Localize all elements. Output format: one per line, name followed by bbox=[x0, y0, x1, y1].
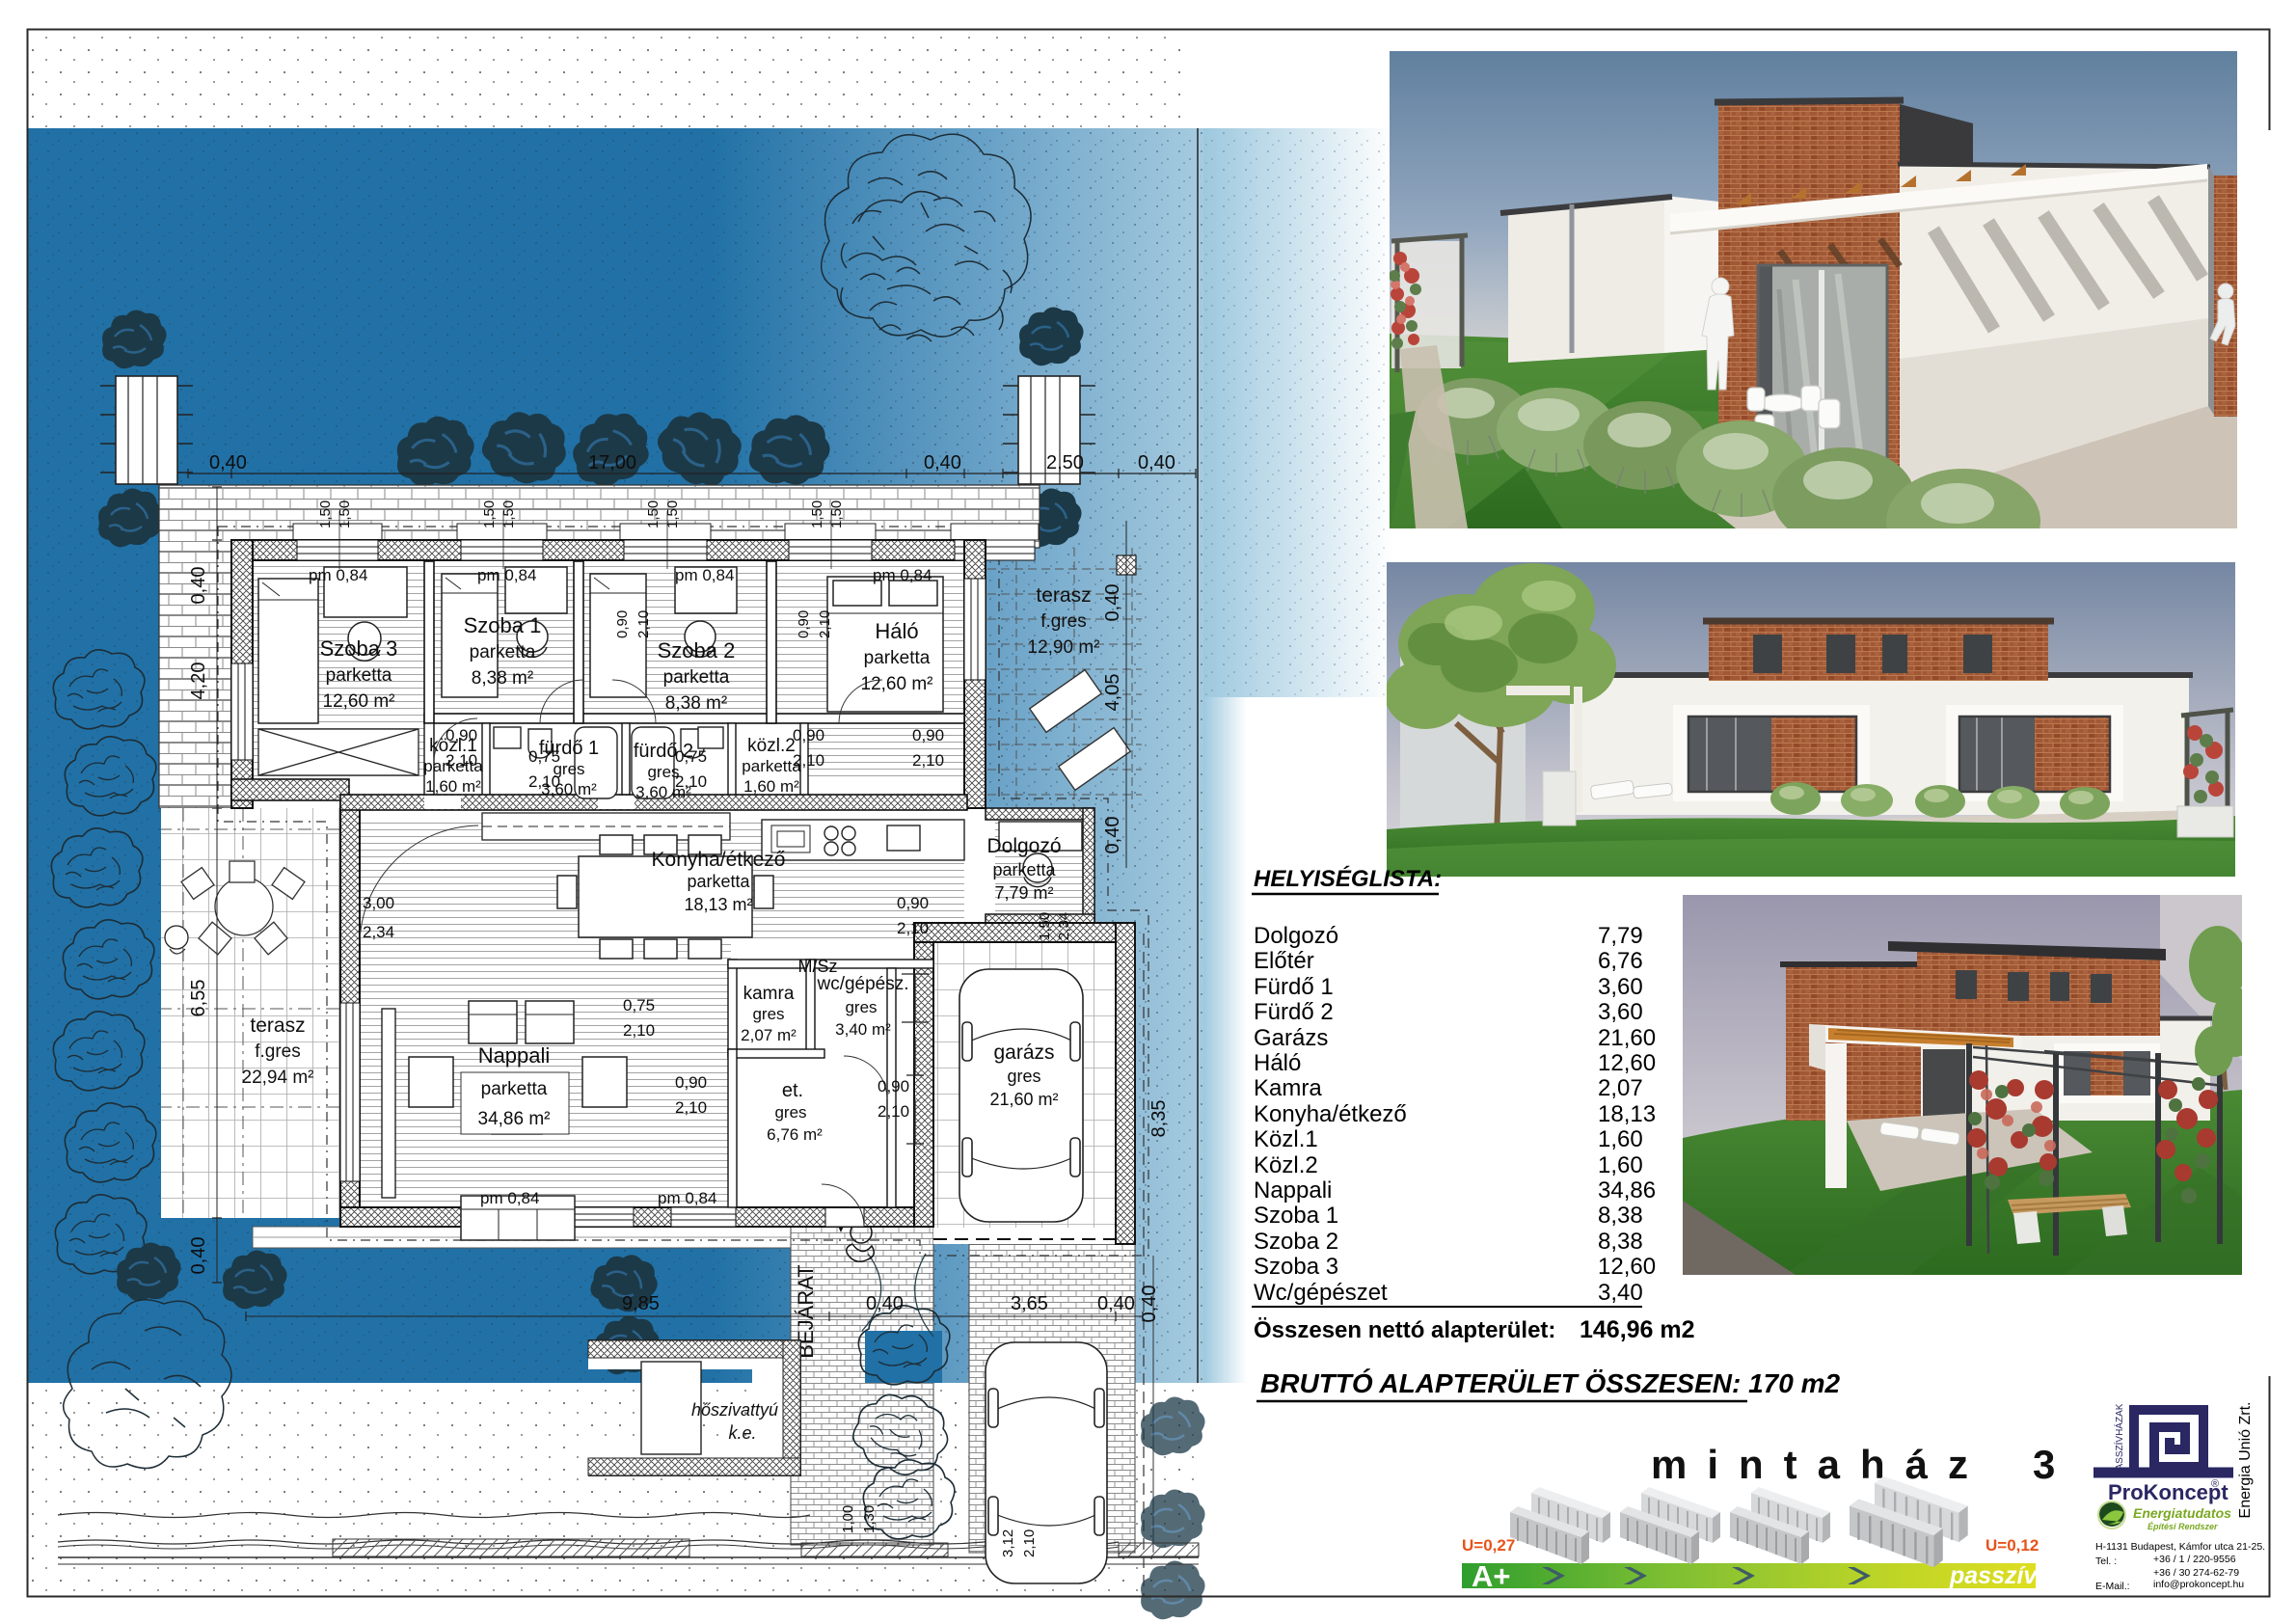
svg-text:Szoba 3: Szoba 3 bbox=[320, 636, 398, 661]
svg-text:Energiatudatos: Energiatudatos bbox=[2133, 1505, 2231, 1521]
svg-text:Garázs: Garázs bbox=[1254, 1025, 1328, 1051]
svg-text:1,50: 1,50 bbox=[481, 500, 498, 528]
svg-text:Szoba 2: Szoba 2 bbox=[658, 638, 736, 663]
svg-text:mintaház: mintaház bbox=[1651, 1442, 1988, 1487]
svg-text:Nappali: Nappali bbox=[478, 1043, 551, 1068]
svg-text:8,35: 8,35 bbox=[1148, 1100, 1170, 1138]
svg-text:kamra: kamra bbox=[743, 984, 795, 1004]
svg-text:2,07 m²: 2,07 m² bbox=[741, 1026, 797, 1044]
svg-text:Szoba 3: Szoba 3 bbox=[1254, 1254, 1338, 1280]
svg-text:0,75: 0,75 bbox=[675, 747, 707, 766]
svg-text:Konyha/étkező: Konyha/étkező bbox=[652, 849, 786, 871]
svg-text:0,40: 0,40 bbox=[1102, 584, 1123, 622]
svg-text:Háló: Háló bbox=[1254, 1050, 1301, 1076]
svg-text:2,10: 2,10 bbox=[878, 1102, 909, 1121]
svg-text:U=0,27: U=0,27 bbox=[1462, 1536, 1515, 1555]
svg-text:+36 / 30 274-62-79: +36 / 30 274-62-79 bbox=[2153, 1567, 2239, 1579]
svg-text:0,40: 0,40 bbox=[866, 1293, 904, 1314]
svg-text:3,40 m²: 3,40 m² bbox=[835, 1020, 891, 1039]
svg-text:Építési Rendszer: Építési Rendszer bbox=[2147, 1522, 2218, 1531]
svg-text:Közl.2: Közl.2 bbox=[1254, 1152, 1318, 1178]
svg-text:1,50: 1,50 bbox=[1037, 912, 1053, 940]
svg-text:0,90: 0,90 bbox=[796, 610, 812, 638]
svg-text:pm 0,84: pm 0,84 bbox=[658, 1189, 716, 1207]
svg-text:hőszivattyú: hőszivattyú bbox=[691, 1400, 778, 1420]
svg-text:k.e.: k.e. bbox=[728, 1423, 756, 1443]
svg-text:0,40: 0,40 bbox=[188, 1237, 209, 1275]
svg-text:gres: gres bbox=[774, 1103, 806, 1122]
svg-text:parketta: parketta bbox=[470, 642, 536, 663]
svg-text:pm 0,84: pm 0,84 bbox=[873, 566, 932, 584]
svg-text:2,10: 2,10 bbox=[623, 1021, 655, 1040]
svg-text:Dolgozó: Dolgozó bbox=[1254, 923, 1338, 949]
svg-text:pm 0,84: pm 0,84 bbox=[675, 566, 734, 584]
svg-text:7,79: 7,79 bbox=[1598, 923, 1643, 949]
svg-text:pm 0,84: pm 0,84 bbox=[480, 1189, 539, 1207]
svg-text:pm 0,84: pm 0,84 bbox=[309, 566, 367, 584]
svg-text:Szoba 1: Szoba 1 bbox=[464, 613, 542, 637]
svg-text:1,60 m²: 1,60 m² bbox=[743, 777, 799, 796]
svg-text:6,76 m²: 6,76 m² bbox=[767, 1125, 823, 1144]
svg-text:0,40: 0,40 bbox=[209, 452, 247, 473]
svg-text:0,90: 0,90 bbox=[614, 610, 631, 638]
svg-text:f.gres: f.gres bbox=[1040, 611, 1087, 632]
svg-text:f.gres: f.gres bbox=[255, 1041, 301, 1062]
svg-text:6,76: 6,76 bbox=[1598, 948, 1643, 974]
svg-text:0,75: 0,75 bbox=[623, 996, 655, 1014]
svg-text:parketta: parketta bbox=[864, 648, 931, 668]
svg-text:U=0,12: U=0,12 bbox=[1985, 1536, 2039, 1555]
svg-text:22,94 m²: 22,94 m² bbox=[242, 1068, 314, 1088]
svg-text:2,34: 2,34 bbox=[363, 923, 394, 941]
svg-text:Összesen nettó alapterület:: Összesen nettó alapterület: bbox=[1254, 1317, 1555, 1343]
svg-text:17,00: 17,00 bbox=[588, 452, 636, 473]
svg-text:info@prokoncept.hu: info@prokoncept.hu bbox=[2153, 1579, 2244, 1590]
svg-text:12,90 m²: 12,90 m² bbox=[1028, 637, 1100, 658]
svg-text:34,86: 34,86 bbox=[1598, 1177, 1656, 1204]
svg-text:7,79 m²: 7,79 m² bbox=[994, 883, 1053, 903]
svg-text:2,10: 2,10 bbox=[817, 610, 833, 638]
svg-text:18,13: 18,13 bbox=[1598, 1101, 1656, 1127]
svg-text:Szoba 2: Szoba 2 bbox=[1254, 1229, 1338, 1255]
svg-text:közl.2: közl.2 bbox=[747, 736, 796, 756]
svg-text:1,00: 1,00 bbox=[840, 1505, 856, 1533]
svg-text:1,30: 1,30 bbox=[861, 1505, 878, 1533]
svg-text:2,50: 2,50 bbox=[1046, 452, 1084, 473]
svg-text:1,50: 1,50 bbox=[809, 500, 825, 528]
svg-text:parketta: parketta bbox=[992, 860, 1056, 879]
svg-text:1,50: 1,50 bbox=[645, 500, 662, 528]
svg-text:0,40: 0,40 bbox=[1102, 817, 1123, 854]
svg-text:parketta: parketta bbox=[687, 872, 750, 891]
svg-text:21,60: 21,60 bbox=[1598, 1025, 1656, 1051]
svg-text:2,10: 2,10 bbox=[675, 772, 707, 791]
svg-text:2,10: 2,10 bbox=[635, 610, 652, 638]
svg-text:3,40: 3,40 bbox=[1598, 1280, 1643, 1306]
svg-text:H-1131 Budapest, Kámfor utca 2: H-1131 Budapest, Kámfor utca 21-25. bbox=[2095, 1541, 2265, 1553]
svg-text:Fürdő 2: Fürdő 2 bbox=[1254, 999, 1334, 1025]
svg-text:0,90: 0,90 bbox=[793, 726, 824, 744]
svg-text:Kamra: Kamra bbox=[1254, 1075, 1322, 1101]
svg-text:0,90: 0,90 bbox=[912, 726, 944, 744]
svg-text:terasz: terasz bbox=[1036, 584, 1091, 607]
svg-text:4,20: 4,20 bbox=[188, 663, 209, 700]
svg-text:0,40: 0,40 bbox=[1097, 1293, 1135, 1314]
svg-text:1,60: 1,60 bbox=[1598, 1152, 1643, 1178]
svg-text:gres: gres bbox=[1007, 1067, 1040, 1086]
svg-text:6,55: 6,55 bbox=[188, 980, 209, 1017]
svg-text:Szoba 1: Szoba 1 bbox=[1254, 1203, 1338, 1229]
svg-text:0,90: 0,90 bbox=[897, 894, 929, 912]
svg-text:wc/gépész.: wc/gépész. bbox=[816, 974, 908, 994]
svg-text:3,60: 3,60 bbox=[1598, 999, 1643, 1025]
svg-text:12,60: 12,60 bbox=[1598, 1050, 1656, 1076]
svg-text:9,85: 9,85 bbox=[622, 1293, 660, 1314]
svg-text:1,50: 1,50 bbox=[337, 500, 353, 528]
svg-text:gres: gres bbox=[845, 998, 877, 1016]
svg-text:garázs: garázs bbox=[993, 1041, 1054, 1064]
svg-text:34,86 m²: 34,86 m² bbox=[478, 1109, 551, 1129]
svg-text:parketta: parketta bbox=[481, 1079, 548, 1099]
svg-text:HELYISÉGLISTA:: HELYISÉGLISTA: bbox=[1254, 865, 1442, 892]
svg-text:2,07: 2,07 bbox=[1598, 1075, 1643, 1101]
svg-text:3,12: 3,12 bbox=[1000, 1529, 1016, 1557]
svg-text:A+: A+ bbox=[1472, 1559, 1511, 1593]
svg-text:3,00: 3,00 bbox=[363, 894, 394, 912]
svg-text:Nappali: Nappali bbox=[1254, 1177, 1332, 1204]
svg-text:Közl.1: Közl.1 bbox=[1254, 1126, 1318, 1152]
svg-text:2,10: 2,10 bbox=[528, 772, 560, 791]
svg-text:1,50: 1,50 bbox=[317, 500, 334, 528]
svg-text:8,38 m²: 8,38 m² bbox=[472, 668, 533, 689]
svg-text:1,50: 1,50 bbox=[828, 500, 845, 528]
svg-text:Háló: Háló bbox=[875, 619, 918, 643]
svg-text:+36 / 1 / 220-9556: +36 / 1 / 220-9556 bbox=[2153, 1554, 2236, 1565]
svg-text:1,50: 1,50 bbox=[500, 500, 517, 528]
svg-text:0,40: 0,40 bbox=[1139, 1285, 1160, 1323]
svg-text:146,96 m2: 146,96 m2 bbox=[1580, 1316, 1695, 1343]
svg-text:12,60 m²: 12,60 m² bbox=[861, 674, 933, 694]
svg-text:2,10: 2,10 bbox=[793, 751, 824, 770]
svg-text:E-Mail.:: E-Mail.: bbox=[2095, 1581, 2130, 1592]
svg-text:2,10: 2,10 bbox=[675, 1098, 707, 1117]
svg-text:0,75: 0,75 bbox=[528, 747, 560, 766]
svg-text:et.: et. bbox=[782, 1080, 803, 1101]
svg-text:0,40: 0,40 bbox=[188, 567, 209, 605]
svg-text:1,60: 1,60 bbox=[1598, 1126, 1643, 1152]
svg-text:2,34: 2,34 bbox=[1056, 912, 1072, 940]
svg-text:2,10: 2,10 bbox=[1021, 1529, 1038, 1557]
svg-text:M/Sz: M/Sz bbox=[797, 957, 837, 976]
svg-text:1,50: 1,50 bbox=[664, 500, 681, 528]
svg-text:0,90: 0,90 bbox=[446, 726, 477, 744]
svg-text:Fürdő 1: Fürdő 1 bbox=[1254, 974, 1334, 1000]
svg-text:Konyha/étkező: Konyha/étkező bbox=[1254, 1101, 1407, 1127]
svg-text:12,60 m²: 12,60 m² bbox=[323, 691, 395, 712]
svg-text:terasz: terasz bbox=[250, 1014, 305, 1037]
svg-text:3,60: 3,60 bbox=[1598, 974, 1643, 1000]
svg-text:®: ® bbox=[2211, 1478, 2219, 1490]
svg-text:12,60: 12,60 bbox=[1598, 1254, 1656, 1280]
svg-text:8,38: 8,38 bbox=[1598, 1203, 1643, 1229]
svg-text:18,13 m²: 18,13 m² bbox=[684, 895, 752, 914]
svg-text:passzív: passzív bbox=[1949, 1562, 2039, 1589]
svg-text:8,38 m²: 8,38 m² bbox=[665, 693, 727, 714]
svg-text:4,05: 4,05 bbox=[1102, 674, 1123, 712]
svg-text:2,10: 2,10 bbox=[912, 751, 944, 770]
svg-text:BRUTTÓ ALAPTERÜLET ÖSSZESEN: 1: BRUTTÓ ALAPTERÜLET ÖSSZESEN: 170 m2 bbox=[1260, 1368, 1840, 1398]
svg-text:2,10: 2,10 bbox=[897, 919, 929, 937]
svg-text:8,38: 8,38 bbox=[1598, 1229, 1643, 1255]
svg-text:2,10: 2,10 bbox=[446, 751, 477, 770]
svg-text:Energia Unió Zrt.: Energia Unió Zrt. bbox=[2237, 1402, 2254, 1519]
svg-text:0,90: 0,90 bbox=[878, 1077, 909, 1096]
svg-text:3,65: 3,65 bbox=[1011, 1293, 1048, 1314]
svg-text:Tel. :: Tel. : bbox=[2095, 1555, 2117, 1567]
svg-text:Wc/gépészet: Wc/gépészet bbox=[1254, 1280, 1388, 1306]
svg-text:3: 3 bbox=[2033, 1442, 2055, 1487]
svg-text:gres: gres bbox=[752, 1005, 784, 1023]
svg-text:Dolgozó: Dolgozó bbox=[986, 835, 1061, 857]
svg-text:1,60 m²: 1,60 m² bbox=[425, 777, 481, 796]
svg-text:parketta: parketta bbox=[663, 667, 730, 688]
svg-text:PASSZÍVHÁZAK: PASSZÍVHÁZAK bbox=[2113, 1403, 2125, 1475]
svg-text:0,90: 0,90 bbox=[675, 1073, 707, 1092]
svg-text:pm 0,84: pm 0,84 bbox=[477, 566, 536, 584]
svg-text:parketta: parketta bbox=[326, 665, 392, 686]
svg-text:0,40: 0,40 bbox=[924, 452, 961, 473]
svg-text:0,40: 0,40 bbox=[1138, 452, 1175, 473]
svg-text:Előtér: Előtér bbox=[1254, 948, 1314, 974]
svg-text:21,60 m²: 21,60 m² bbox=[989, 1090, 1058, 1109]
